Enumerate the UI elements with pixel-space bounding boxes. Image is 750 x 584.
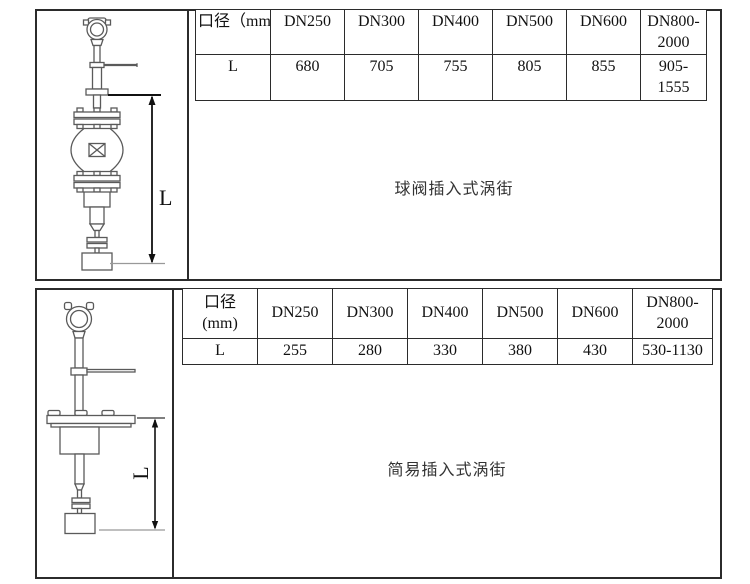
meter-body [60,427,99,454]
table-data-row: L 255 280 330 380 430 530-1130 [183,339,713,365]
taper [75,484,84,490]
diameter-header-cell: 口径（mm） [196,10,271,55]
dimensions-table-ball-valve: 口径（mm） DN250 DN300 DN400 DN500 DN600 DN8… [195,9,707,101]
length-value-cell: 380 [483,339,558,365]
dn-column-header: DN250 [258,289,333,339]
thin-stem [95,248,99,253]
transmitter-head-inner [91,23,104,36]
length-value-cell: 905-1555 [641,55,707,101]
arrowhead-down-icon [149,254,156,264]
head-ear-right [87,303,94,310]
arrowhead-up-icon [152,419,158,428]
length-value-cell: 705 [345,55,419,101]
transmitter-head-inner [71,311,88,328]
dn-column-header: DN400 [419,10,493,55]
probe-collar [72,504,90,509]
dn-column-header: DN600 [558,289,633,339]
bolt [77,125,83,129]
lower-neck [93,68,102,90]
head-neck [73,332,85,339]
length-value-cell: 330 [408,339,483,365]
dn-column-header: DN800-2000 [633,289,713,339]
bolt [75,411,87,416]
dn-column-header: DN300 [345,10,419,55]
probe-collar [72,498,90,503]
length-value-cell: 855 [567,55,641,101]
table-header-row: 口径（mm） DN250 DN300 DN400 DN500 DN600 DN8… [196,10,707,55]
panel-divider [172,290,174,577]
length-value-cell: 430 [558,339,633,365]
flange-plate [74,112,120,118]
thin-stem [78,509,82,514]
flange-plate [74,183,120,189]
bolt [77,188,83,192]
taper-cylinder [90,207,104,224]
length-value-cell: 805 [493,55,567,101]
head-neck [91,40,103,46]
length-row-label: L [183,339,258,365]
bolt [111,188,117,192]
probe-stem [75,454,84,484]
arrowhead-up-icon [149,96,156,106]
upper-stem [75,338,83,368]
table-header-row: 口径 (mm) DN250 DN300 DN400 DN500 DN600 DN… [183,289,713,339]
probe-collar [87,238,107,243]
valve-collar [90,63,104,68]
bolt [102,411,114,416]
mounting-flange-plate [47,416,135,424]
dimension-label: L [159,185,172,210]
connector-block [84,192,110,207]
length-value-cell: 280 [333,339,408,365]
arrowhead-down-icon [152,521,158,530]
flange-plate [74,119,120,125]
upper-stem [94,46,100,63]
dn-column-header: DN400 [408,289,483,339]
flange-plate [74,176,120,182]
probe-block [82,253,112,270]
bolt [111,125,117,129]
ball-valve-flowmeter-diagram: L [37,11,187,275]
stem-collar [71,368,87,375]
dn-column-header: DN500 [483,289,558,339]
probe-block [65,514,95,534]
page: L 口径（mm） DN250 DN300 DN400 DN500 DN600 D… [0,0,750,584]
dn-column-header: DN250 [271,10,345,55]
length-value-cell: 530-1130 [633,339,713,365]
dn-column-header: DN500 [493,10,567,55]
dn-column-header: DN800-2000 [641,10,707,55]
thin-stem [95,231,99,238]
dimension-label-rotated: L [128,466,153,479]
stem-2 [94,95,101,108]
section-simple-insertion: L 口径 (mm) DN250 DN300 DN400 DN500 DN600 … [35,288,722,579]
dimensions-table-simple-insertion: 口径 (mm) DN250 DN300 DN400 DN500 DN600 DN… [182,288,713,365]
section-caption: 球阀插入式涡街 [394,175,513,199]
length-value-cell: 755 [419,55,493,101]
handle-bar [87,370,135,373]
simple-insertion-flowmeter-diagram: L [37,290,172,573]
table-data-row: L 680 705 755 805 855 905-1555 [196,55,707,101]
dn-column-header: DN600 [567,10,641,55]
thin-stem [78,490,82,498]
taper [90,224,104,231]
bolt [48,411,60,416]
small-flange [86,89,108,95]
length-row-label: L [196,55,271,101]
length-value-cell: 680 [271,55,345,101]
length-value-cell: 255 [258,339,333,365]
diameter-header-cell: 口径 (mm) [183,289,258,339]
section-caption: 简易插入式涡街 [387,456,506,480]
panel-divider [187,11,189,279]
dn-column-header: DN300 [333,289,408,339]
section-ball-valve: L 口径（mm） DN250 DN300 DN400 DN500 DN600 D… [35,9,722,281]
lower-stem [75,375,83,415]
head-ear-left [65,303,72,310]
probe-collar [87,244,107,249]
